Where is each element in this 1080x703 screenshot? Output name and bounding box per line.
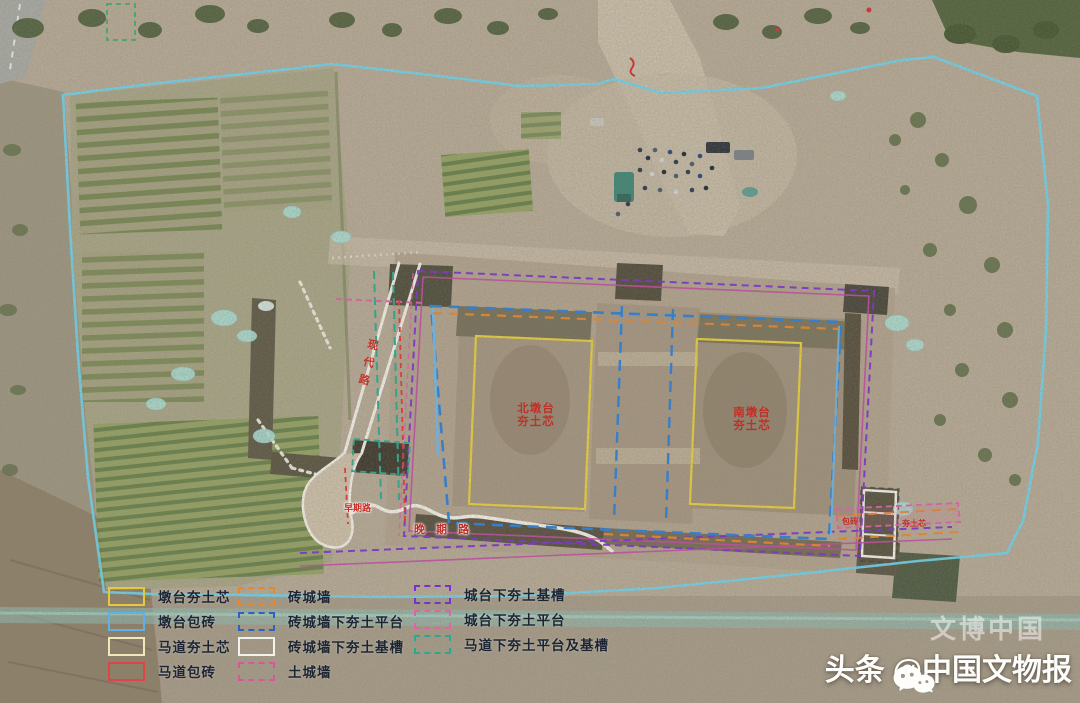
- site-photo-canvas: [0, 0, 1080, 703]
- watermark-faint-text: 文博中国: [930, 609, 1046, 646]
- annotated-aerial-photo: 北墩台夯土芯 南墩台夯土芯 现代路 晚 期 路 早期路 包砖 夯土芯 墩台夯土芯…: [0, 0, 1080, 703]
- watermark-prefix: 头条: [825, 645, 885, 689]
- watermark-main-text: 头条 @中国文物报: [825, 645, 1072, 689]
- grain-texture: [0, 0, 1080, 703]
- watermark: 文博中国 头条 @中国文物报: [774, 621, 1074, 691]
